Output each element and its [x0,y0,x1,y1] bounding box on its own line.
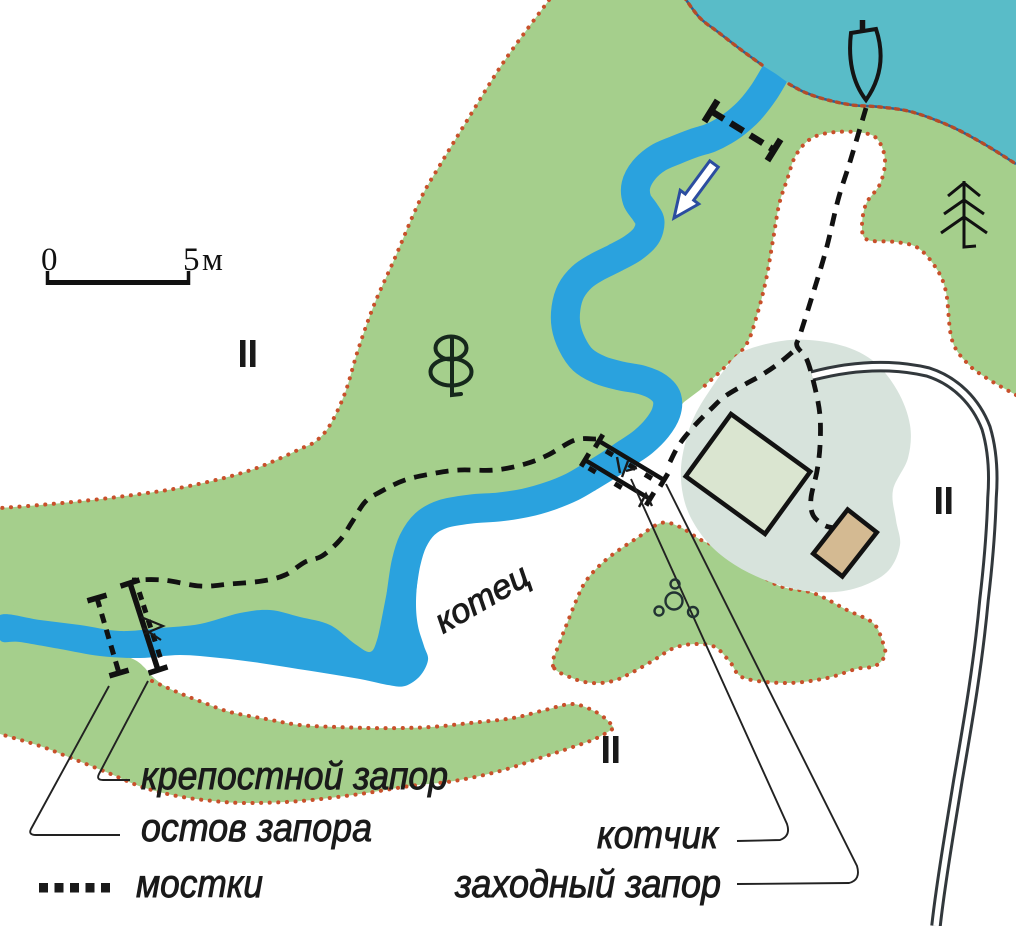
svg-text:остов запора: остов запора [141,807,372,850]
svg-text:0: 0 [41,242,58,278]
svg-text:заходный запор: заходный запор [454,863,721,906]
svg-text:крепостной запор: крепостной запор [141,755,448,798]
svg-text:котчик: котчик [597,814,719,857]
svg-text:мостки: мостки [136,863,263,906]
svg-text:м: м [202,242,223,278]
svg-text:5: 5 [183,242,200,278]
